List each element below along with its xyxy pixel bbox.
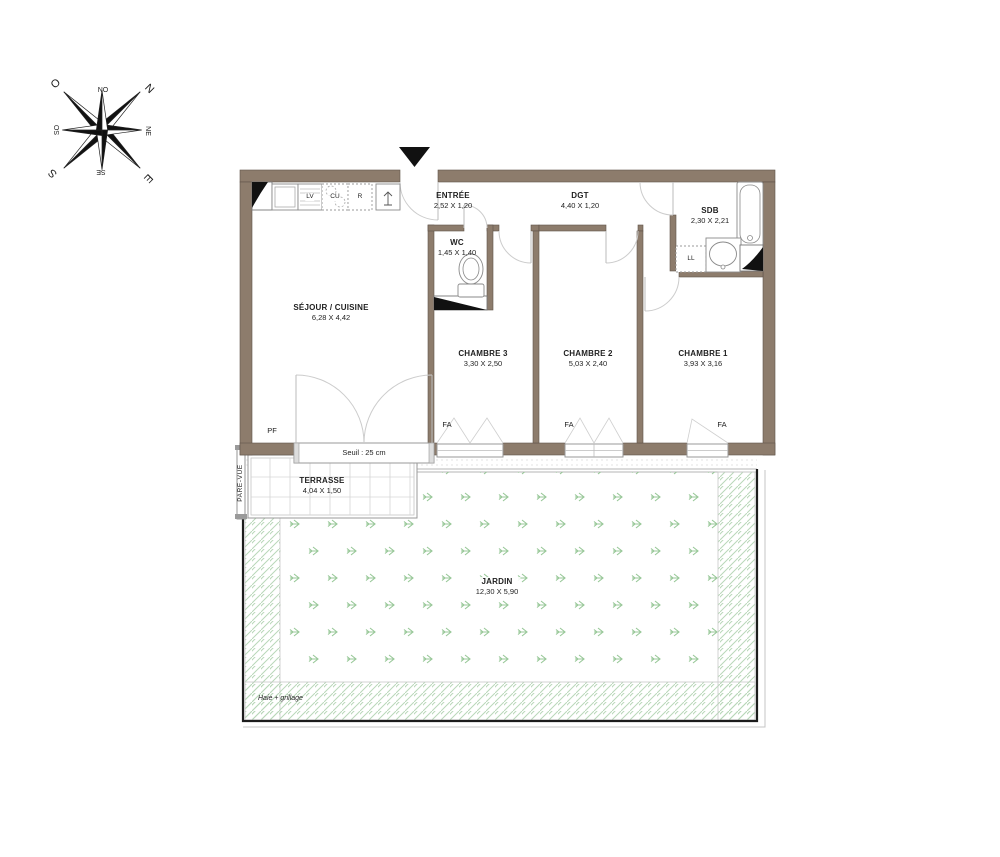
sink-icon — [272, 184, 298, 210]
room-label-wc: WC 1,45 X 1,40 — [438, 238, 476, 257]
compass-o-label: O — [49, 76, 64, 91]
room-label-sdb: SDB 2,30 X 2,21 — [691, 206, 729, 225]
entrance-marker-icon — [399, 147, 430, 167]
room-label-sejour: SÉJOUR / CUISINE 6,28 X 4,42 — [293, 303, 368, 322]
compass-so-label: SO — [54, 124, 61, 135]
room-label-entree: ENTRÉE 2,52 X 1,20 — [434, 191, 472, 210]
room-label-chambre2: CHAMBRE 2 5,03 X 2,40 — [563, 349, 612, 368]
fa-label-chambre1: FA — [717, 420, 726, 429]
compass-se-label: SE — [96, 168, 106, 175]
kitchen-counter — [252, 182, 400, 210]
room-label-chambre3: CHAMBRE 3 3,30 X 2,50 — [458, 349, 507, 368]
cooktop-label: CU — [329, 193, 340, 201]
hedge-label: Haie + grillage — [258, 695, 303, 703]
fa-label-chambre2: FA — [564, 420, 573, 429]
fridge-label: R — [357, 193, 364, 201]
room-label-jardin: JARDIN 12,30 X 5,90 — [474, 577, 521, 596]
toilet-icon — [458, 254, 484, 297]
room-label-dgt: DGT 4,40 X 1,20 — [561, 191, 599, 210]
compass-ne-label: NE — [144, 126, 151, 136]
fa-label-chambre3: FA — [442, 420, 451, 429]
compass-s-label: S — [46, 166, 60, 180]
room-label-terrasse: TERRASSE 4,04 X 1,50 — [299, 476, 344, 495]
room-label-chambre1: CHAMBRE 1 3,93 X 3,16 — [678, 349, 727, 368]
compass-rose-icon: N E S O NO NE SE SO — [26, 54, 179, 207]
washbasin-icon — [706, 238, 741, 272]
threshold-label: Seuil : 25 cm — [342, 448, 385, 457]
washer-label: LL — [686, 255, 695, 263]
floor-plan-drawing: N E S O NO NE SE SO — [0, 0, 1000, 857]
floor-plan-page: N E S O NO NE SE SO SÉJOUR / CUISINE 6,2… — [0, 0, 1000, 857]
privacy-screen-label: PARE-VUE — [237, 464, 245, 502]
compass-no-label: NO — [98, 87, 109, 94]
dishwasher-label: LV — [305, 193, 314, 201]
compass-n-label: N — [142, 82, 156, 96]
pf-label: PF — [267, 426, 277, 435]
bathtub-icon — [737, 182, 763, 246]
compass-e-label: E — [141, 171, 155, 185]
